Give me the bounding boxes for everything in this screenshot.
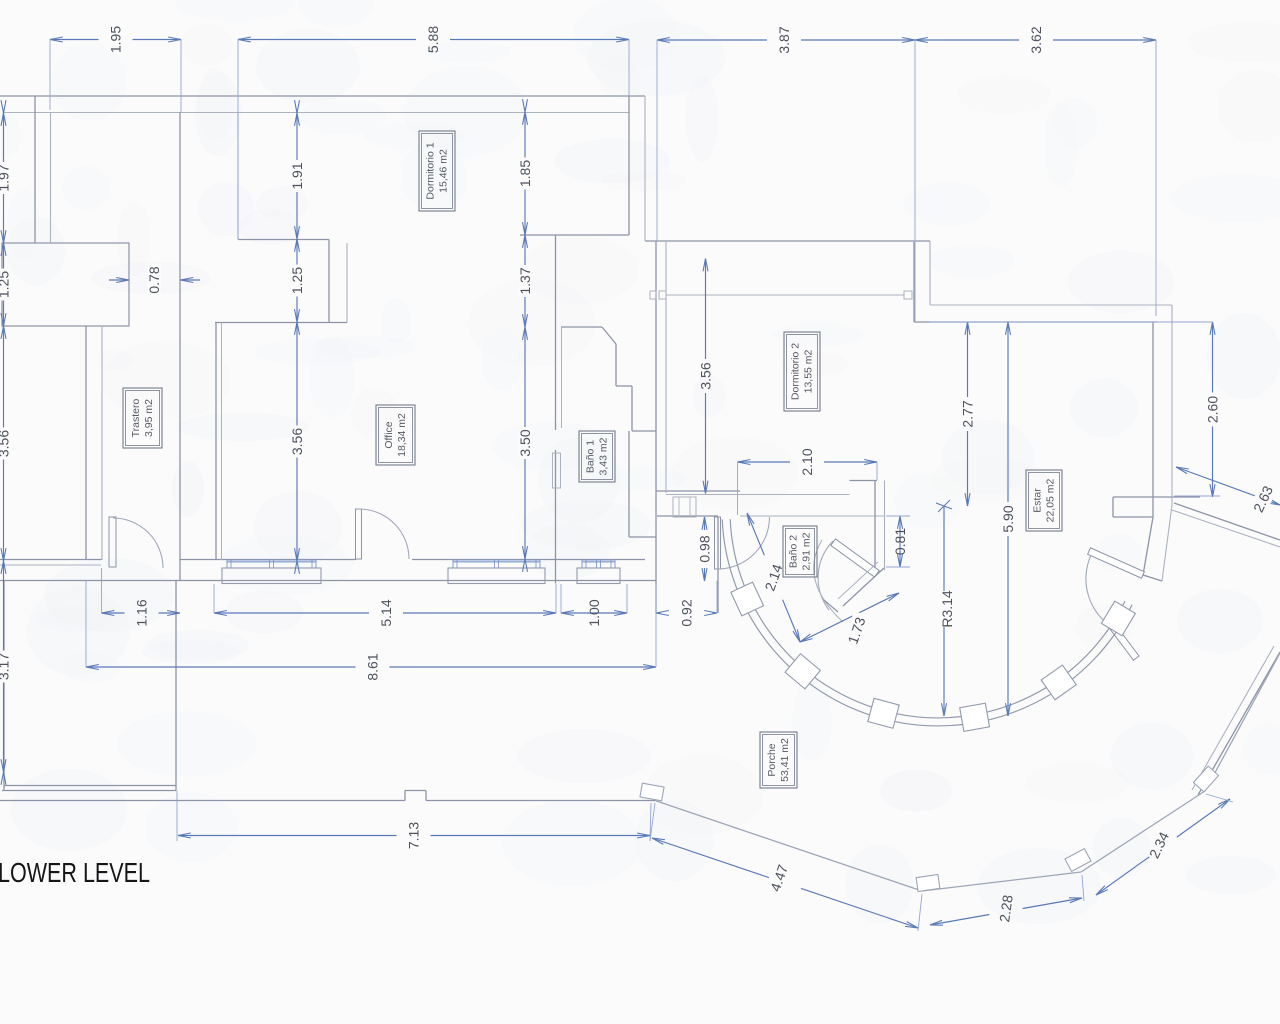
svg-text:Baño 2: Baño 2	[788, 535, 800, 568]
svg-text:8.61: 8.61	[365, 653, 381, 680]
svg-text:1.97: 1.97	[0, 164, 12, 191]
svg-text:3,95 m2: 3,95 m2	[143, 399, 155, 437]
svg-text:3,43 m2: 3,43 m2	[598, 437, 610, 475]
svg-text:5.88: 5.88	[425, 26, 441, 53]
svg-text:3.56: 3.56	[698, 362, 714, 389]
svg-text:Dormitorio 2: Dormitorio 2	[790, 343, 802, 400]
svg-text:3.87: 3.87	[776, 26, 792, 53]
svg-text:Dormitorio 1: Dormitorio 1	[425, 142, 437, 199]
svg-text:5.14: 5.14	[378, 599, 394, 626]
svg-text:0.81: 0.81	[892, 528, 908, 555]
svg-text:5.90: 5.90	[1000, 505, 1016, 532]
svg-text:1.91: 1.91	[289, 162, 305, 189]
svg-text:1.95: 1.95	[108, 26, 124, 53]
svg-text:15,46 m2: 15,46 m2	[438, 149, 450, 193]
svg-text:1.25: 1.25	[0, 271, 12, 298]
svg-text:18,34 m2: 18,34 m2	[396, 413, 408, 457]
svg-text:7.13: 7.13	[406, 822, 422, 849]
svg-text:R3.14: R3.14	[939, 590, 955, 628]
svg-text:0.92: 0.92	[679, 599, 695, 626]
svg-text:Trastero: Trastero	[130, 398, 142, 437]
svg-text:Office: Office	[383, 421, 395, 448]
svg-text:13,55 m2: 13,55 m2	[803, 349, 815, 393]
svg-text:3.56: 3.56	[289, 428, 305, 455]
svg-text:3.17: 3.17	[0, 653, 12, 680]
svg-text:2.60: 2.60	[1205, 396, 1221, 423]
svg-text:1.85: 1.85	[517, 160, 533, 187]
svg-text:3.56: 3.56	[0, 430, 12, 457]
svg-text:1.37: 1.37	[517, 267, 533, 294]
svg-text:0.78: 0.78	[146, 266, 162, 293]
svg-text:2,91 m2: 2,91 m2	[801, 532, 813, 570]
svg-text:1.25: 1.25	[289, 267, 305, 294]
svg-text:Estar: Estar	[1032, 488, 1044, 513]
svg-text:2.10: 2.10	[799, 448, 815, 475]
svg-text:1.00: 1.00	[586, 599, 602, 626]
svg-text:3.62: 3.62	[1028, 26, 1044, 53]
svg-text:LOWER LEVEL: LOWER LEVEL	[0, 857, 150, 888]
svg-text:Porche: Porche	[766, 743, 778, 776]
svg-text:0.98: 0.98	[697, 535, 713, 562]
svg-text:3.50: 3.50	[517, 429, 533, 456]
svg-text:2.77: 2.77	[960, 400, 976, 427]
svg-text:Baño 1: Baño 1	[585, 440, 597, 473]
svg-text:1.16: 1.16	[134, 599, 150, 626]
svg-text:53,41 m2: 53,41 m2	[779, 738, 791, 782]
svg-text:22,05 m2: 22,05 m2	[1045, 478, 1057, 522]
